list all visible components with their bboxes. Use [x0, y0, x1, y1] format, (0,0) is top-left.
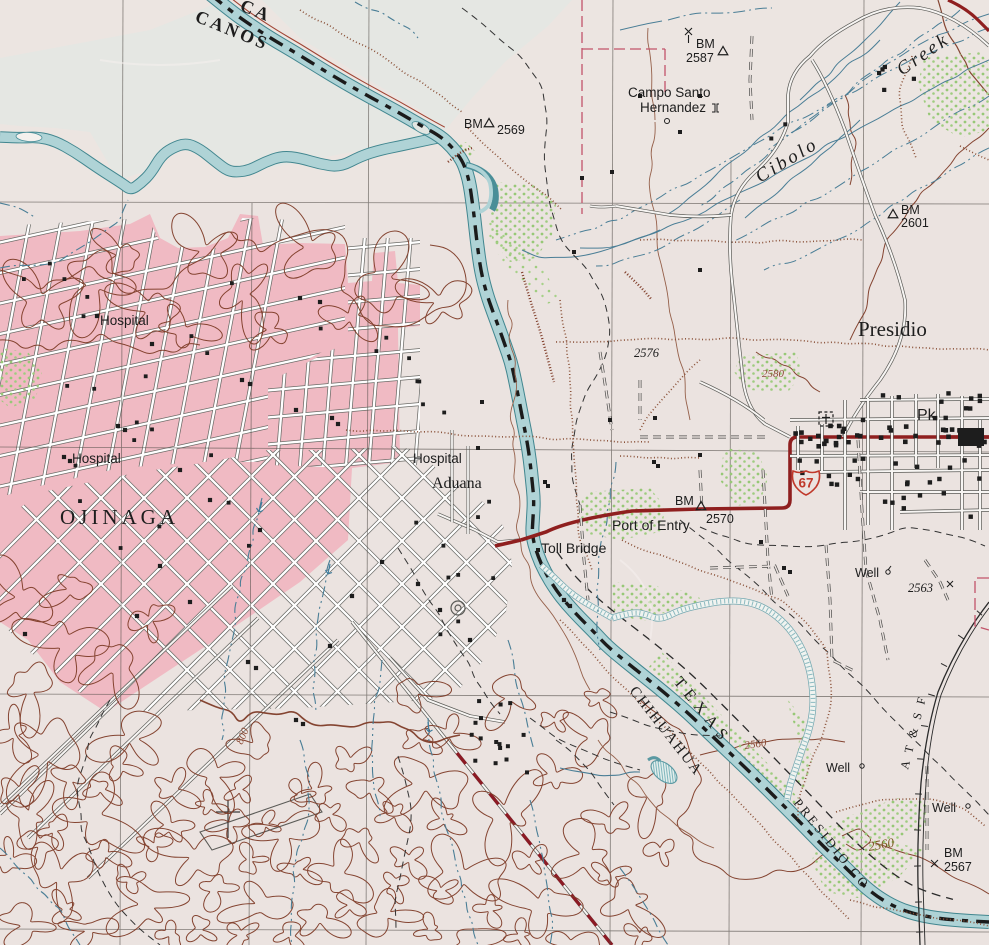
svg-text:Toll Bridge: Toll Bridge	[541, 540, 607, 556]
svg-text:Hospital: Hospital	[100, 313, 149, 328]
svg-text:Pk: Pk	[917, 407, 937, 424]
svg-text:2601: 2601	[901, 216, 929, 230]
svg-text:Well: Well	[855, 566, 879, 580]
svg-text:Port of Entry: Port of Entry	[612, 517, 690, 533]
svg-text:BM: BM	[901, 203, 920, 217]
svg-text:BM: BM	[696, 37, 715, 51]
svg-text:Hernandez: Hernandez	[640, 100, 706, 115]
svg-text:2569: 2569	[497, 123, 525, 137]
svg-text:2576: 2576	[634, 346, 660, 360]
svg-text:2587: 2587	[686, 51, 714, 65]
svg-text:Aduana: Aduana	[432, 475, 482, 492]
svg-text:2563: 2563	[908, 581, 933, 595]
svg-text:2567: 2567	[944, 860, 972, 874]
svg-text:2570: 2570	[706, 512, 734, 526]
svg-text:2580: 2580	[762, 368, 785, 380]
svg-text:Presidio: Presidio	[858, 317, 927, 341]
svg-text:BM: BM	[675, 494, 694, 508]
svg-text:Hospital: Hospital	[413, 451, 462, 466]
svg-text:67: 67	[798, 476, 813, 491]
svg-text:BM: BM	[464, 117, 483, 131]
svg-text:BM: BM	[944, 846, 963, 860]
svg-text:Hospital: Hospital	[72, 451, 121, 466]
svg-text:Campo Santo: Campo Santo	[628, 85, 711, 100]
svg-text:Well: Well	[932, 801, 956, 815]
svg-text:OJINAGA: OJINAGA	[60, 505, 179, 529]
svg-text:Well: Well	[826, 761, 850, 775]
